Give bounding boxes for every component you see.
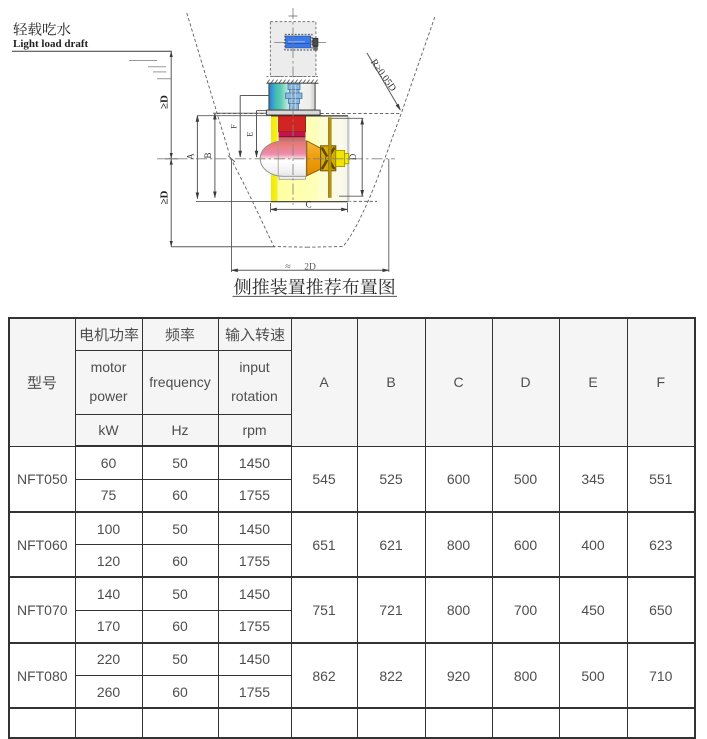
svg-text:R≥0.05D: R≥0.05D (368, 57, 398, 94)
svg-text:2D: 2D (304, 262, 316, 272)
svg-text:≥D: ≥D (159, 95, 171, 109)
svg-text:F: F (228, 124, 238, 129)
svg-text:C: C (306, 199, 312, 209)
svg-text:A: A (186, 153, 196, 160)
svg-text:≈: ≈ (285, 261, 291, 272)
svg-text:Light load draft: Light load draft (13, 38, 89, 50)
svg-text:D: D (348, 153, 358, 160)
svg-text:≥D: ≥D (159, 190, 171, 204)
svg-text:E: E (245, 132, 255, 137)
svg-text:B: B (203, 152, 213, 158)
